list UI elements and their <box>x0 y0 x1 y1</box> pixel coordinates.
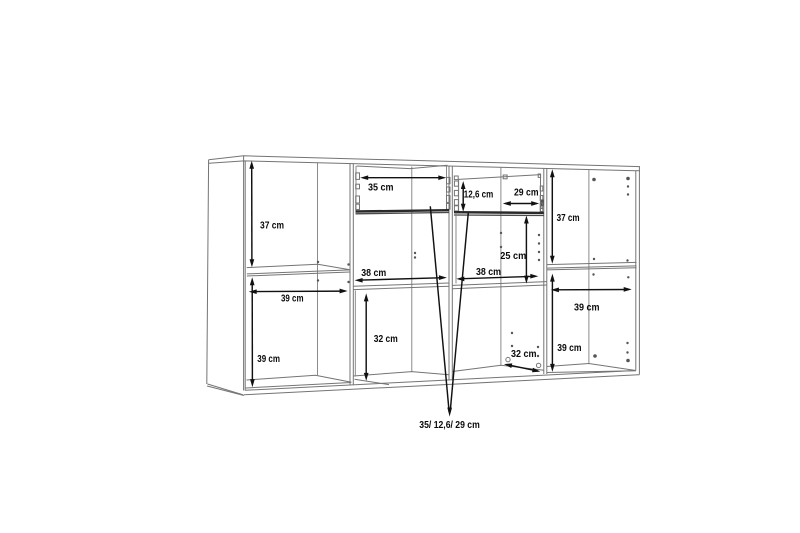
svg-text:39 cm: 39 cm <box>281 293 304 304</box>
svg-text:32 cm: 32 cm <box>374 334 398 345</box>
svg-text:12,6 cm: 12,6 cm <box>464 190 494 201</box>
svg-text:39 cm: 39 cm <box>574 303 600 314</box>
svg-text:32 cm: 32 cm <box>511 349 537 360</box>
svg-text:38 cm: 38 cm <box>361 268 386 279</box>
svg-text:35/ 12,6/ 29 cm: 35/ 12,6/ 29 cm <box>419 420 480 431</box>
svg-text:39 cm: 39 cm <box>557 343 581 354</box>
svg-text:25 cm: 25 cm <box>500 251 526 262</box>
svg-text:39 cm: 39 cm <box>257 354 280 365</box>
svg-text:35 cm: 35 cm <box>368 183 394 194</box>
svg-text:37 cm: 37 cm <box>557 213 580 224</box>
svg-text:37 cm: 37 cm <box>260 221 284 232</box>
svg-text:29 cm: 29 cm <box>514 187 539 198</box>
svg-text:38 cm: 38 cm <box>476 267 501 278</box>
